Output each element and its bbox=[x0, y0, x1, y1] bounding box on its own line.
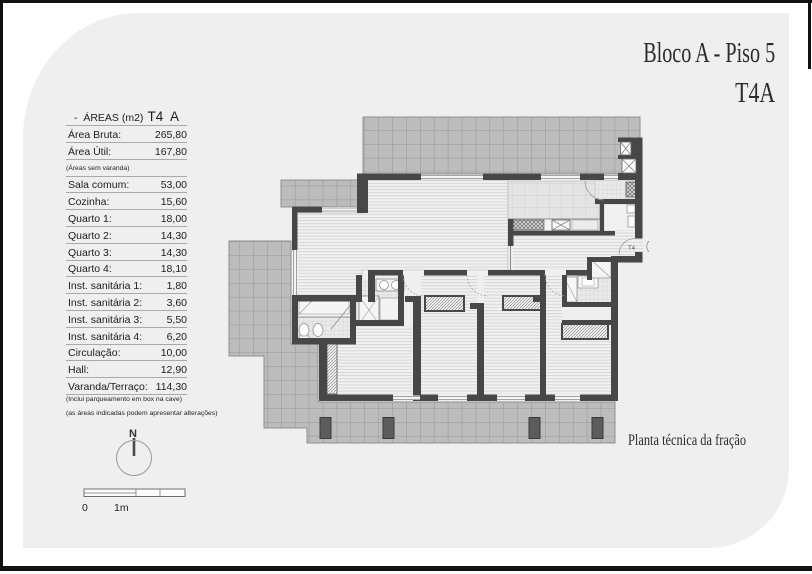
svg-text:T4: T4 bbox=[628, 246, 636, 252]
svg-text:1m: 1m bbox=[114, 502, 129, 514]
svg-text:0: 0 bbox=[82, 502, 88, 514]
